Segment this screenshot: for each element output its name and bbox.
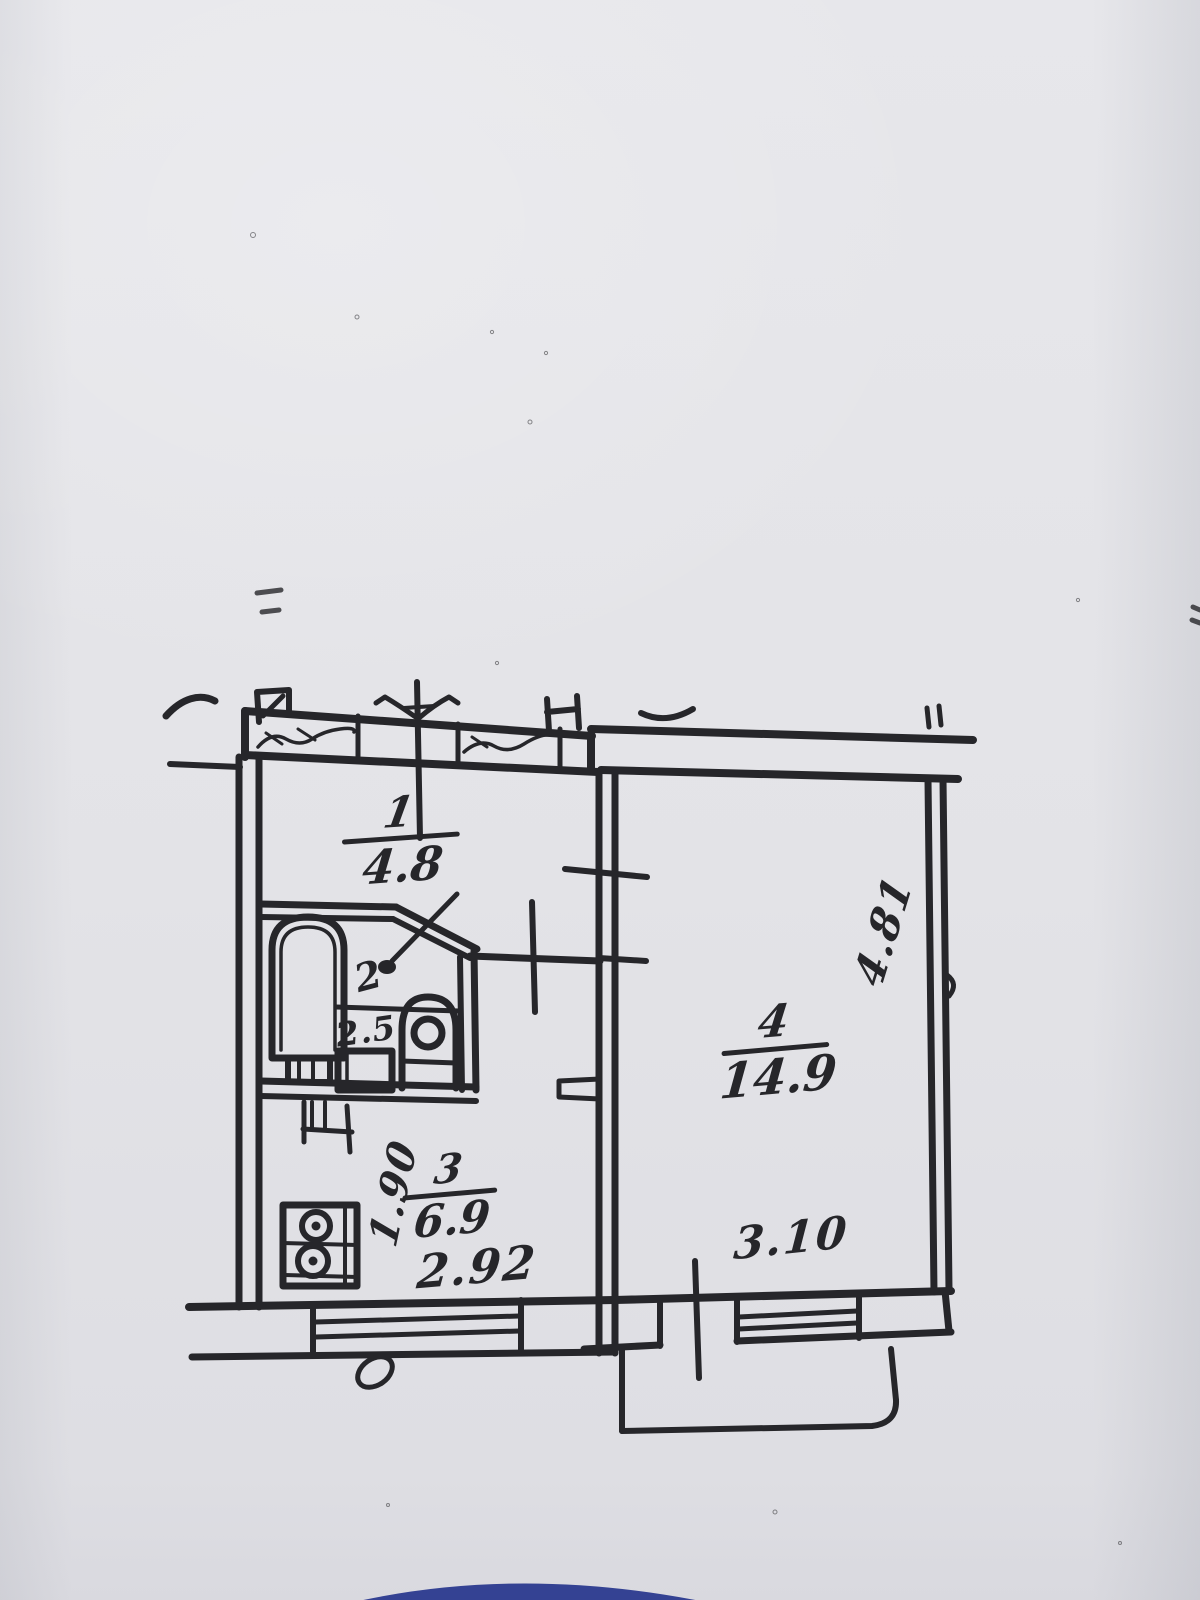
balcony-door-line: [695, 1261, 699, 1378]
interior-wall: [559, 774, 647, 1353]
room-4-number: 4: [756, 999, 792, 1046]
room-4-area: 14.9: [718, 1048, 839, 1107]
kitchen-pipes-icon: [303, 1102, 352, 1152]
left-wall: [239, 757, 259, 1307]
wall-bracket-icon: [547, 696, 579, 731]
floor-plan-photo: 1 4.8 2 2.5 3 6.9 4 14.9 2.92 1.90 3.10 …: [0, 0, 1200, 1600]
dim-kitchen-width: 2.92: [415, 1239, 539, 1296]
bathtub-icon: [272, 917, 344, 1082]
arc-mark: [641, 709, 693, 718]
room-3-number: 3: [431, 1148, 464, 1191]
room-4-label: 4 14.9: [713, 996, 838, 1107]
room-3-area: 6.9: [412, 1195, 492, 1246]
floor-plan-drawing: [0, 0, 1200, 1600]
dim-room4-width: 3.10: [732, 1211, 850, 1268]
room-1-area: 4.8: [360, 839, 445, 891]
room-1-label: 1 4.8: [339, 788, 463, 893]
blue-stamp-arc: [352, 1585, 708, 1600]
room-2-area: 2.5: [334, 1010, 398, 1051]
room-1-number: 1: [381, 790, 418, 835]
right-wall: [928, 779, 954, 1292]
door-leaf-line: [532, 902, 535, 1012]
balcony: [622, 1349, 896, 1431]
stove-icon: [283, 1205, 357, 1286]
